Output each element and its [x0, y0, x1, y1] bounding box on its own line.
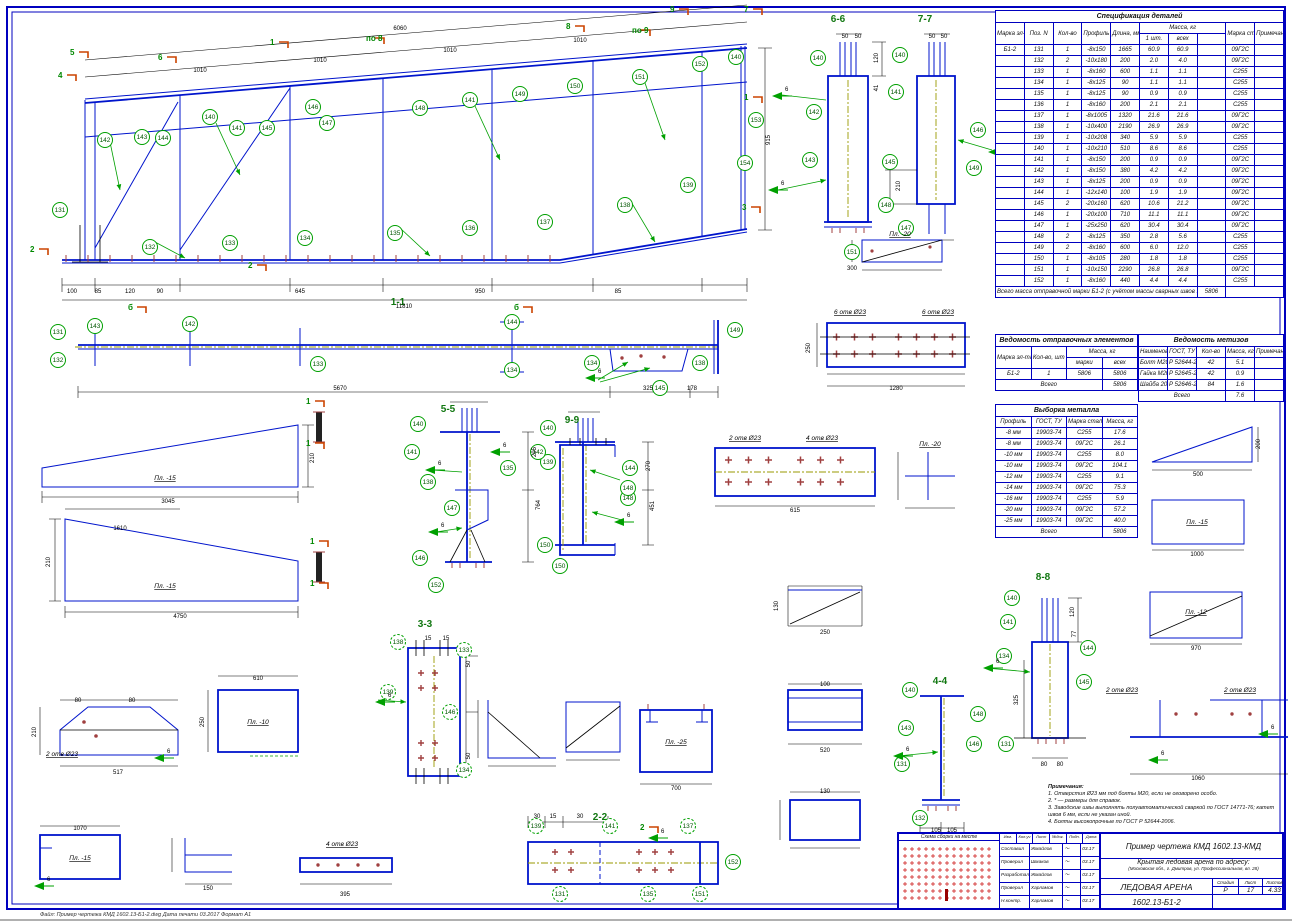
schematic-grid-mark: [931, 896, 935, 900]
metal-row: 40.0: [1102, 516, 1138, 527]
section-6-6: [778, 34, 886, 233]
cut-flag-label: 1: [306, 439, 311, 448]
callout-label: Пл. -20: [889, 231, 911, 238]
position-balloon-label: 152: [728, 859, 739, 866]
spec-row: 1: [1053, 67, 1082, 78]
spec-row: 131: [1024, 45, 1053, 56]
schematic-grid-mark: [952, 896, 956, 900]
spec-row: 132: [1024, 56, 1053, 67]
position-balloon-label: 149: [730, 327, 741, 334]
spec-row: [996, 155, 1025, 166]
position-balloon-label: 134: [587, 360, 598, 367]
cut-flag-icon: [753, 97, 762, 103]
schematic-grid-mark: [924, 896, 928, 900]
cut-flag-icon: [39, 249, 48, 255]
dimension-label: 50: [842, 34, 849, 40]
doc-ref: Пример чертежа КМД 1602.13-КМД: [1126, 842, 1261, 851]
schematic-grid-mark: [938, 896, 942, 900]
spec-row: 1: [1053, 144, 1082, 155]
spec-row: 148: [1024, 232, 1053, 243]
dimension-label: 50: [855, 34, 862, 40]
weld-symbol-icon: [34, 882, 44, 890]
spec-row: [1255, 199, 1284, 210]
position-balloon-label: 131: [53, 329, 64, 336]
spec-row: -10х150: [1082, 265, 1111, 276]
cut-flag-icon: [137, 307, 146, 313]
schematic-grid-mark: [931, 861, 935, 865]
dimension-label: 1070: [73, 826, 87, 832]
spec-row: 1.1: [1168, 78, 1197, 89]
gusset-triangle: [1152, 427, 1258, 470]
spec-row: [996, 188, 1025, 199]
schematic-grid-mark: [952, 868, 956, 872]
dimension-label: 85: [615, 289, 622, 295]
schematic-grid-mark: [931, 889, 935, 893]
schematic-grid-mark: [966, 847, 970, 851]
schematic-grid-mark: [980, 854, 984, 858]
spec-row: 09Г2С: [1226, 199, 1255, 210]
position-balloon-label: 150: [555, 563, 566, 570]
tb-date: 03.17: [1081, 844, 1100, 856]
spec-row: 2.0: [1139, 56, 1168, 67]
schematic-grid-mark: [938, 882, 942, 886]
spec-row: Б1-2: [996, 45, 1025, 56]
hardware-table: Ведомость метизов НаименованиеГОСТ, ТУКо…: [1138, 334, 1284, 402]
plate-diagonal-mid: [788, 586, 862, 626]
callout-label: Пл. -12: [1185, 609, 1207, 616]
schematic-grid-mark: [910, 896, 914, 900]
section-title: 6-6: [831, 14, 846, 25]
weld-size-label: 6: [781, 181, 785, 187]
schematic-grid-mark: [973, 882, 977, 886]
cut-flag-label: 1: [310, 579, 315, 588]
metal-row: С255: [1067, 450, 1103, 461]
dimension-label: 500: [1193, 472, 1204, 478]
spec-row: 1.1: [1139, 78, 1168, 89]
position-balloon-label: 144: [625, 465, 636, 472]
spec-row: [996, 111, 1025, 122]
schematic-grid-mark: [987, 875, 991, 879]
dimension-label: 6060: [393, 26, 407, 32]
metal-row: С255: [1067, 472, 1103, 483]
hw-footer: [1255, 391, 1284, 402]
dimension-label: 1010: [193, 68, 207, 74]
dimension-label: 80: [129, 698, 136, 704]
spec-row: 60.9: [1168, 45, 1197, 56]
schematic-grid-mark: [980, 861, 984, 865]
dimension-label: 325: [1014, 694, 1020, 705]
spec-row: 60.9: [1139, 45, 1168, 56]
spec-row: 1: [1053, 254, 1082, 265]
tb-header-col: Изм.: [1000, 834, 1017, 843]
schematic-grid-mark: [966, 875, 970, 879]
spec-row: 1.8: [1139, 254, 1168, 265]
position-balloon-label: 132: [53, 357, 64, 364]
spec-row: 30.4: [1168, 221, 1197, 232]
position-balloon-label: 131: [1001, 741, 1012, 748]
spec-row: -8х125: [1082, 89, 1111, 100]
position-balloon-label: 151: [635, 74, 646, 81]
spec-row: 2: [1053, 232, 1082, 243]
schematic-grid-mark: [980, 896, 984, 900]
tb-header-col: Подп.: [1067, 834, 1084, 843]
metal-row: 19903-74: [1031, 483, 1067, 494]
position-balloon-label: 136: [465, 225, 476, 232]
spec-table-title: Спецификация деталей: [995, 10, 1284, 22]
schematic-grid-mark: [966, 896, 970, 900]
dimension-label: 50: [941, 34, 948, 40]
metal-row: С255: [1067, 494, 1103, 505]
dimension-label: 395: [340, 892, 351, 898]
schematic-grid-mark: [959, 854, 963, 858]
spec-row: 1: [1053, 45, 1082, 56]
cut-flag-icon: [751, 207, 760, 213]
cut-flag-icon: [67, 75, 76, 81]
position-balloon-label: 140: [905, 687, 916, 694]
spec-row: 26.9: [1139, 122, 1168, 133]
metal-row: 19903-74: [1031, 505, 1067, 516]
spec-row: [996, 177, 1025, 188]
ship-row: 1: [1031, 369, 1067, 380]
spec-row: С255: [1226, 89, 1255, 100]
spec-row: 1: [1053, 276, 1082, 287]
spec-row: [1255, 122, 1284, 133]
schematic-grid-mark: [910, 854, 914, 858]
spec-table-grid: Марка эл-таПоз. NКол-воПрофильДлина, ммМ…: [995, 22, 1284, 298]
tb-name: Харламов: [1030, 883, 1064, 895]
schematic-grid-mark: [931, 882, 935, 886]
spec-row: [996, 133, 1025, 144]
position-balloon-label: 140: [731, 54, 742, 61]
weld-symbol-icon: [983, 664, 993, 672]
cut-flag-label: 2: [640, 823, 645, 832]
spec-row: [1197, 243, 1226, 254]
channel-horizontal: [788, 684, 862, 744]
dimension-label: 4750: [173, 614, 187, 620]
position-balloon-label: 135: [643, 891, 654, 898]
position-balloon-label: 132: [915, 815, 926, 822]
ship-row: Б1-2: [996, 369, 1032, 380]
hw-header: Примечание: [1255, 347, 1284, 358]
spec-row: [996, 122, 1025, 133]
spec-header: Марка эл-та: [996, 23, 1025, 45]
dimension-label: 50: [466, 752, 472, 759]
spec-row: 350: [1111, 232, 1140, 243]
schematic-grid-mark: [938, 854, 942, 858]
spec-row: 1.1: [1139, 67, 1168, 78]
dimension-label: 80: [75, 698, 82, 704]
spec-row: С255: [1226, 232, 1255, 243]
schematic-grid-mark: [903, 882, 907, 886]
spec-row: [996, 221, 1025, 232]
notes-title: Примечания:: [1048, 784, 1280, 791]
spec-row: 1: [1053, 221, 1082, 232]
spec-row: 10.6: [1139, 199, 1168, 210]
metal-row: -8 мм: [996, 428, 1032, 439]
position-balloon-label: 135: [390, 230, 401, 237]
position-balloon-label: 151: [695, 891, 706, 898]
weld-size-label: 6: [1271, 725, 1275, 731]
dimension-label: 80: [1041, 762, 1048, 768]
position-balloon-label: 150: [540, 542, 551, 549]
spec-row: 2290: [1111, 265, 1140, 276]
dimension-label: 50: [466, 660, 472, 667]
sheets-label: Листов: [1266, 880, 1282, 885]
position-balloon-label: 138: [695, 360, 706, 367]
spec-row: 0.9: [1139, 155, 1168, 166]
schematic-grid-mark: [903, 847, 907, 851]
spec-row: 4.2: [1168, 166, 1197, 177]
weld-size-label: 6: [598, 369, 602, 375]
spec-row: [1255, 67, 1284, 78]
spec-row: 147: [1024, 221, 1053, 232]
spec-row: 21.2: [1168, 199, 1197, 210]
hw-row: 1.6: [1226, 380, 1255, 391]
position-balloon-label: 146: [969, 741, 980, 748]
spec-row: [1255, 155, 1284, 166]
sheet-number: 17: [1247, 887, 1254, 894]
position-balloon-label: 141: [1003, 619, 1014, 626]
position-balloon-label: 146: [415, 555, 426, 562]
schematic-grid-mark: [952, 882, 956, 886]
dimension-label: 250: [806, 342, 812, 353]
weld-size-label: 6: [661, 829, 665, 835]
spec-row: -8х125: [1082, 232, 1111, 243]
metal-footer: Всего: [996, 527, 1103, 538]
spec-header: Профиль: [1082, 23, 1111, 45]
position-balloon-label: 138: [393, 639, 404, 646]
spec-row: 0.9: [1139, 177, 1168, 188]
schematic-grid-mark: [973, 847, 977, 851]
dimension-label: 615: [790, 508, 801, 514]
dimension-label: 85: [95, 289, 102, 295]
schematic-grid-mark: [973, 889, 977, 893]
hw-row: 0.9: [1226, 369, 1255, 380]
schematic-grid-mark: [987, 861, 991, 865]
weld-size-label: 6: [47, 877, 51, 883]
spec-row: 11.1: [1168, 210, 1197, 221]
spec-row: 152: [1024, 276, 1053, 287]
hw-row: Р 52645-2006: [1168, 369, 1197, 380]
hw-row: Р 52646-2004: [1168, 380, 1197, 391]
position-balloon-label: 131: [555, 891, 566, 898]
position-balloon-label: 143: [90, 323, 101, 330]
position-balloon-label: 143: [137, 134, 148, 141]
spec-row: -10х210: [1082, 144, 1111, 155]
schematic-grid-mark: [903, 889, 907, 893]
spec-row: 5.9: [1139, 133, 1168, 144]
spec-row: 0.9: [1139, 89, 1168, 100]
spec-row: 26.8: [1139, 265, 1168, 276]
position-balloon-label: 145: [1079, 679, 1090, 686]
spec-row: [1197, 265, 1226, 276]
metal-row: 19903-74: [1031, 472, 1067, 483]
schematic-grid-mark: [917, 875, 921, 879]
hw-row: Болт М20х60.10.9: [1139, 358, 1168, 369]
spec-row: 30.4: [1139, 221, 1168, 232]
schematic-grid-mark: [917, 847, 921, 851]
dimension-label: 610: [253, 676, 264, 682]
section-title: 8-8: [1036, 572, 1051, 583]
callout-label: Пл. -25: [665, 739, 687, 746]
position-balloon-label: 145: [262, 125, 273, 132]
metal-row: 104.1: [1102, 461, 1138, 472]
dimension-label: 41: [874, 84, 880, 91]
note-line: 4. Болты высокопрочные по ГОСТ Р 52644-2…: [1048, 819, 1280, 826]
spec-row: [1197, 221, 1226, 232]
spec-row: 144: [1024, 188, 1053, 199]
position-balloon-label: 140: [413, 421, 424, 428]
schematic-grid-mark: [980, 889, 984, 893]
section-9-9: [555, 412, 654, 545]
spec-row: [1197, 78, 1226, 89]
position-balloon-label: 131: [55, 207, 66, 214]
tb-role: Разработал: [1000, 870, 1030, 882]
metal-row: 09Г2С: [1067, 439, 1103, 450]
spec-row: 1: [1053, 188, 1082, 199]
schematic-grid-mark: [966, 861, 970, 865]
ship-subheader: всех: [1102, 358, 1138, 369]
schematic-grid-mark: [903, 875, 907, 879]
spec-row: 8.6: [1168, 144, 1197, 155]
spec-header: Поз. N: [1024, 23, 1053, 45]
schematic-grid-mark: [959, 847, 963, 851]
spec-row: 1: [1053, 177, 1082, 188]
weld-symbol-icon: [768, 186, 778, 194]
cut-flag-icon: [523, 307, 532, 313]
spec-row: 380: [1111, 166, 1140, 177]
weld-symbol-icon: [1148, 756, 1158, 764]
spec-row: 09Г2С: [1226, 210, 1255, 221]
dimension-label: 100: [67, 289, 78, 295]
schematic-grid-mark: [959, 861, 963, 865]
position-balloon-label: 140: [813, 55, 824, 62]
spec-row: 137: [1024, 111, 1053, 122]
hw-header: Наименование: [1139, 347, 1168, 358]
spec-row: [996, 276, 1025, 287]
spec-row: -8х1005: [1082, 111, 1111, 122]
cut-flag-label: 7: [744, 5, 749, 14]
metal-header: Марка стали: [1067, 417, 1103, 428]
assembly-schematic: [899, 841, 997, 903]
schematic-grid-mark: [945, 875, 949, 879]
schematic-grid-mark: [952, 875, 956, 879]
position-balloon-label: 154: [740, 160, 751, 167]
weld-symbol-icon: [490, 448, 500, 456]
position-balloon-label: 138: [423, 479, 434, 486]
spec-row: 1: [1053, 89, 1082, 100]
spec-row: 09Г2С: [1226, 56, 1255, 67]
spec-row: [1197, 199, 1226, 210]
weld-size-label: 6: [167, 749, 171, 755]
weld-symbol-icon: [585, 374, 595, 382]
callout-label: Пл. -15: [154, 475, 176, 482]
dimension-label: 451: [650, 500, 656, 511]
note-line: 1. Отверстия Ø23 мм под болты М20, если …: [1048, 791, 1280, 798]
cut-flag-label: 5: [70, 48, 75, 57]
spec-row: С255: [1226, 144, 1255, 155]
spec-row: 2.1: [1139, 100, 1168, 111]
dimension-label: 1060: [1191, 776, 1205, 782]
dimension-label: 120: [874, 52, 880, 63]
note-line: 2. * — размеры для справок.: [1048, 798, 1280, 805]
spec-row: 09Г2С: [1226, 45, 1255, 56]
tb-name: Жмайлов: [1030, 870, 1064, 882]
spec-row: [1255, 276, 1284, 287]
spec-row: 620: [1111, 221, 1140, 232]
spec-subheader: всех: [1168, 34, 1197, 45]
position-balloon-label: 151: [847, 249, 858, 256]
tb-signature: 〜: [1063, 857, 1081, 869]
schematic-grid-mark: [910, 861, 914, 865]
cut-flag-label: 6: [158, 53, 163, 62]
tb-name: Жмайлов: [1030, 844, 1064, 856]
position-balloon-label: 138: [620, 202, 631, 209]
schematic-grid-mark: [973, 875, 977, 879]
schematic-grid-mark: [987, 896, 991, 900]
tb-signature: 〜: [1063, 870, 1081, 882]
hw-row: Гайка М20: [1139, 369, 1168, 380]
spec-row: [1255, 78, 1284, 89]
spec-row: -8х125: [1082, 177, 1111, 188]
metal-row: 75.3: [1102, 483, 1138, 494]
metal-row: 19903-74: [1031, 494, 1067, 505]
spec-row: [996, 243, 1025, 254]
dimension-label: 1010: [313, 58, 327, 64]
schematic-grid-mark: [938, 847, 942, 851]
spec-row: 09Г2С: [1226, 122, 1255, 133]
position-balloon-label: 137: [683, 823, 694, 830]
position-balloon-label: 134: [507, 367, 518, 374]
schematic-grid-mark: [903, 868, 907, 872]
schematic-grid-mark: [924, 889, 928, 893]
spec-row: [1255, 144, 1284, 155]
metal-table-title: Выборка металла: [995, 404, 1138, 416]
shipping-table: Ведомость отправочных элементов Марка эл…: [995, 334, 1138, 391]
position-balloon-label: 139: [683, 182, 694, 189]
callout-label: Пл. -15: [1186, 519, 1208, 526]
cut-flag-label: по 9: [632, 26, 649, 35]
position-balloon-label: 141: [605, 823, 616, 830]
spec-row: [1197, 254, 1226, 265]
cut-flag-icon: [315, 401, 324, 407]
dimension-label: 1610: [113, 526, 127, 532]
spec-row: 2: [1053, 243, 1082, 254]
schematic-grid-mark: [952, 889, 956, 893]
spec-row: 141: [1024, 155, 1053, 166]
position-balloon-label: 133: [313, 361, 324, 368]
tb-name: Харламов: [1030, 896, 1064, 908]
spec-header: Марка стали: [1226, 23, 1255, 45]
spec-footer: Всего масса отправочной марки Б1-2 (с уч…: [996, 287, 1198, 298]
spec-row: 710: [1111, 210, 1140, 221]
bolt-marks: [418, 670, 438, 761]
spec-row: [1197, 122, 1226, 133]
spec-row: 8.6: [1139, 144, 1168, 155]
spec-row: 2: [1053, 56, 1082, 67]
position-balloon-label: 152: [431, 582, 442, 589]
position-balloon-label: 144: [507, 319, 518, 326]
spec-row: 26.9: [1168, 122, 1197, 133]
spec-row: 600: [1111, 67, 1140, 78]
tb-name: Шмаков: [1030, 857, 1064, 869]
dimension-label: 950: [475, 289, 486, 295]
spec-row: 600: [1111, 243, 1140, 254]
plate-bottom-mid: [780, 792, 860, 848]
dimension-label: 130: [774, 600, 780, 611]
callout-label: 4 отв Ø23: [326, 841, 358, 848]
plate-detail-b: [49, 509, 298, 618]
